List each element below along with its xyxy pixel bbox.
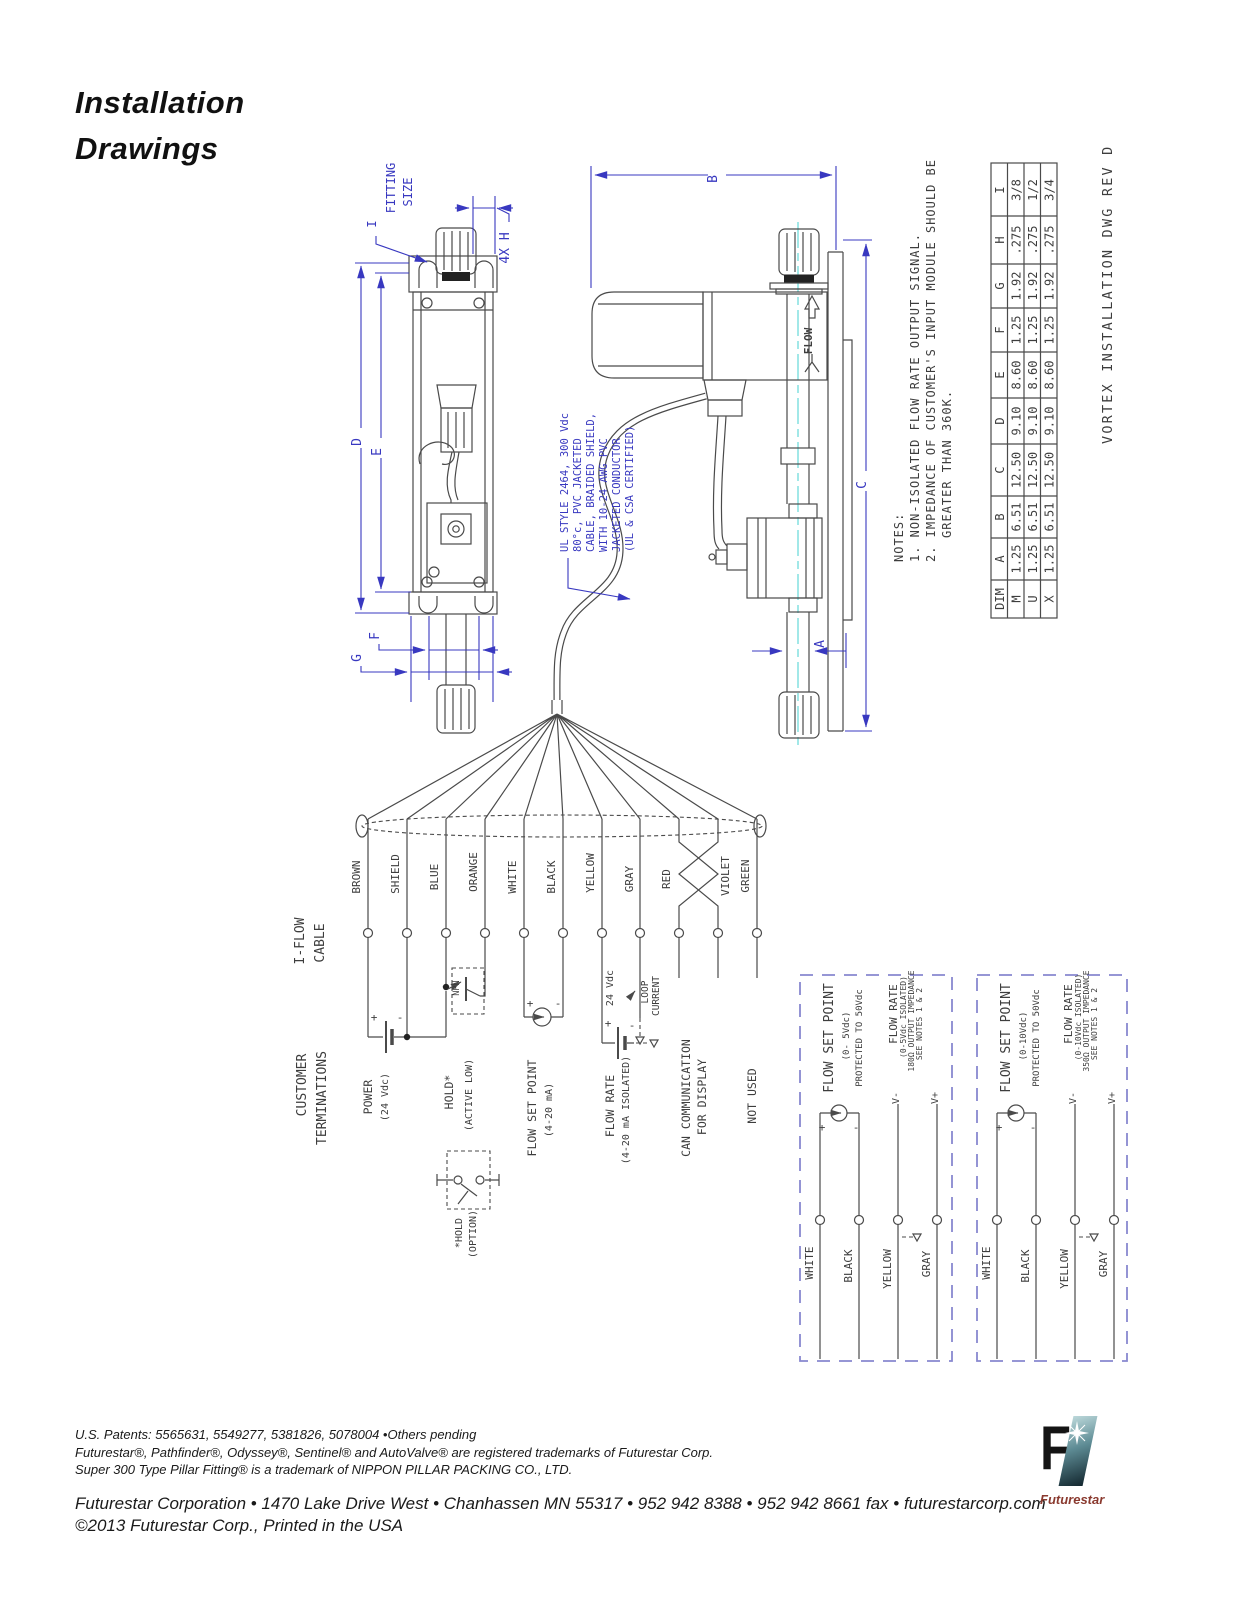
power-circuit: + - POWER (24 Vdc) [361,937,446,1121]
cell: 1/2 [1026,179,1040,201]
box2-wire-white: WHITE [980,1246,993,1279]
gasket [442,272,470,281]
box1-range: (0- 5Vdc) [842,1012,852,1061]
dimension-table: DIM A B C D E F G H I M 1.25 6.51 12.50 … [991,163,1057,618]
hold-sub: (ACTIVE LOW) [464,1059,475,1131]
th-g: G [993,282,1007,289]
cell: 1.25 [1043,316,1057,345]
wire-label-black: BLACK [545,860,558,893]
fsp-label: FLOW SET POINT [525,1059,539,1156]
dim-c-label: C [855,481,870,489]
power-plus: + [371,1011,378,1024]
cable-note-line6: (UL & CSA CERTIFIED) [624,426,636,552]
box2-wire-gray: GRAY [1097,1250,1110,1277]
termination-box-0-10vdc: FLOW SET POINT (0-10Vdc) PROTECTED TO 50… [977,970,1127,1361]
th-e: E [993,371,1007,378]
cell: 9.10 [1026,407,1040,436]
note-2: 2. IMPEDANCE OF CUSTOMER'S INPUT MODULE … [924,159,938,562]
fr-vdc-label: 24 Vdc [605,970,616,1006]
th-dim: DIM [993,588,1007,610]
cable-note-line1: UL STYLE 2464, 300 Vdc [559,413,571,552]
cell: 12.50 [1043,452,1057,488]
trademarks-line1: Futurestar®, Pathfinder®, Odyssey®, Sent… [75,1444,1046,1462]
wire-label-orange: ORANGE [467,852,480,892]
cell: .275 [1010,226,1024,255]
cell: X [1043,595,1057,603]
cell: 3/8 [1010,179,1024,201]
box1-wire-yellow: YELLOW [881,1249,894,1289]
cell: 1.25 [1010,545,1024,574]
cell: 3/4 [1043,179,1057,201]
cell: 1.25 [1026,545,1040,574]
wire-label-white: WHITE [506,860,519,893]
cell: 12.50 [1026,452,1040,488]
wire-label-red: RED [660,869,673,889]
th-b: B [993,513,1007,520]
fsp-plus: + [527,997,534,1010]
box1-title: FLOW SET POINT [822,983,837,1093]
loop-label-line2: CURRENT [651,976,662,1016]
dim-d-label: D [350,438,365,446]
dim-f-label: F [368,632,383,640]
hold-option-sub: (OPTION) [468,1210,479,1258]
hold-option-label: *HOLD [454,1218,465,1248]
box2-wire-black: BLACK [1019,1249,1032,1282]
th-c: C [993,466,1007,473]
box1-v-plus: V+ [930,1092,941,1104]
can-label-line1: CAN COMMUNICATION [679,1039,693,1157]
cable-note-line5: JACKETED CONDUCTOR [611,438,623,552]
th-d: D [993,417,1007,424]
fitting-note-size: SIZE [401,178,415,207]
box1-see-notes: SEE NOTES 1 & 2 [915,988,924,1060]
customer-terminations: CUSTOMER TERMINATIONS + - POWER (24 Vdc) [295,937,759,1258]
sensor-box [427,503,487,583]
th-h: H [993,236,1007,243]
wire-label-brown: BROWN [350,860,363,893]
cell: 8.60 [1010,361,1024,390]
wire-label-yellow: YELLOW [584,853,597,893]
wire-label-shield: SHIELD [389,854,402,894]
flow-set-point-circuit: + - FLOW SET POINT (4-20 mA) [524,937,563,1156]
note-2b: GREATER THAN 360K. [940,390,954,538]
th-a: A [993,555,1007,563]
box2-see-notes: SEE NOTES 1 & 2 [1090,988,1099,1060]
rev-label-group: VORTEX INSTALLATION DWG REV D [1100,144,1116,444]
wire-label-green: GREEN [739,859,752,892]
cell: 6.51 [1010,503,1024,532]
front-view-dimensions: D E 4X H I FITTING SIZE F G [350,163,513,702]
dim-b-label: B [706,175,721,183]
side-bottom-nut [779,692,819,738]
front-view [409,228,497,733]
dim-e-label: E [370,448,385,456]
box2-minus: - [1030,1121,1037,1134]
dim-h-label: 4X H [498,232,513,263]
cell: U [1026,595,1040,602]
box2-range: (0-10Vdc) [1019,1012,1029,1061]
cell: 9.10 [1010,407,1024,436]
cable-spec-note: UL STYLE 2464, 300 Vdc 80°c, PVC JACKETE… [559,413,636,599]
fsp-minus: - [555,997,562,1010]
wire-label-blue: BLUE [428,864,441,891]
customer-label-line1: CUSTOMER [295,1054,310,1117]
wire-label-gray: GRAY [623,865,636,892]
box2-v-plus: V+ [1107,1092,1118,1104]
top-nut [436,228,476,274]
box1-protection: PROTECTED TO 50Vdc [855,989,865,1087]
fitting-note-i: I [365,220,379,227]
cell: 8.60 [1043,361,1057,390]
fr-minus: - [629,1019,636,1032]
futurestar-logo: F Futurestar [1040,1416,1150,1507]
cable-name-line2: CABLE [313,923,328,962]
fitting-note-fitting: FITTING [384,163,398,214]
cell: 1.92 [1026,272,1040,301]
trademarks-line2: Super 300 Type Pillar Fitting® is a trad… [75,1461,1046,1479]
cable-name-line1: I-FLOW [293,917,308,964]
flow-rate-circuit: + - 24 Vdc LOOP CURRENT FLOW RATE (4-20 … [602,937,662,1164]
box2-protection: PROTECTED TO 50Vdc [1032,989,1042,1087]
fsp-range: (4-20 mA) [544,1083,555,1137]
npn-label: NPN [452,980,462,995]
hold-label: HOLD* [442,1075,456,1110]
cable-terminals [364,929,762,938]
fr-range: (4-20 mA ISOLATED) [621,1056,632,1164]
box2-title: FLOW SET POINT [999,983,1014,1093]
cable-note-line4: WITH 10-24 AWG PVC [598,438,610,552]
dim-a-label: A [813,640,828,648]
power-minus: - [397,1011,404,1024]
logo-brand-text: Futurestar [1040,1492,1150,1507]
fr-label: FLOW RATE [603,1075,617,1137]
dim-g-label: G [350,654,365,662]
cell: 8.60 [1026,361,1040,390]
manual-page: Installation Drawings [0,0,1236,1600]
page-footer: U.S. Patents: 5565631, 5549277, 5381826,… [75,1426,1046,1537]
cell: 1.25 [1010,316,1024,345]
jacket-cut-line [362,815,762,837]
box1-v-minus: V- [891,1092,902,1104]
box1-wire-black: BLACK [842,1249,855,1282]
logo-star-icon [1064,1420,1090,1446]
box2-v-minus: V- [1068,1092,1079,1104]
wire-label-violet: VIOLET [719,856,732,896]
cell: 1.25 [1026,316,1040,345]
installation-drawing: D E 4X H I FITTING SIZE F G [0,0,1236,1600]
drawing-rev-label: VORTEX INSTALLATION DWG REV D [1100,144,1116,444]
box1-wire-white: WHITE [803,1246,816,1279]
customer-label-line2: TERMINATIONS [315,1051,330,1145]
fr-plus: + [605,1017,612,1030]
power-label: POWER [361,1080,375,1115]
cell: M [1010,595,1024,602]
termination-box-0-5vdc: FLOW SET POINT (0- 5Vdc) PROTECTED TO 50… [800,970,952,1361]
cell: .275 [1043,226,1057,255]
th-f: F [993,326,1007,333]
copyright-line: ©2013 Futurestar Corp., Printed in the U… [75,1515,1046,1537]
wire-fanout: BROWN SHIELD BLUE ORANGE WHITE BLACK YEL… [293,714,766,964]
cell: 9.10 [1043,407,1057,436]
body [413,292,493,592]
cell: .275 [1026,226,1040,255]
cable-note-line2: 80°c, PVC JACKETED [572,438,584,552]
box1-wire-gray: GRAY [920,1250,933,1277]
patents-line: U.S. Patents: 5565631, 5549277, 5381826,… [75,1426,1046,1444]
notes-title: NOTES: [892,513,906,562]
side-top-nut [779,229,819,275]
loop-label-line1: LOOP [640,980,651,1003]
not-used-label: NOT USED [745,1068,759,1123]
company-address: Futurestar Corporation • 1470 Lake Drive… [75,1493,1046,1515]
box2-wire-yellow: YELLOW [1058,1249,1071,1289]
can-label-line2: FOR DISPLAY [695,1059,709,1135]
box1-minus: - [853,1121,860,1134]
note-1: 1. NON-ISOLATED FLOW RATE OUTPUT SIGNAL. [908,233,922,562]
power-voltage: (24 Vdc) [380,1073,391,1121]
th-i: I [993,186,1007,193]
cable-note-line3: CABLE, BRAIDED SHIELD, [585,413,597,552]
cell: 1.92 [1010,272,1024,301]
hold-option-switch: *HOLD (OPTION) [437,1151,499,1258]
notes: NOTES: 1. NON-ISOLATED FLOW RATE OUTPUT … [892,159,954,562]
cell: 6.51 [1026,503,1040,532]
cell: 1.92 [1043,272,1057,301]
cell: 12.50 [1010,452,1024,488]
cell: 6.51 [1043,503,1057,532]
hold-circuit: NPN HOLD* (ACTIVE LOW) [442,937,485,1131]
cell: 1.25 [1043,545,1057,574]
